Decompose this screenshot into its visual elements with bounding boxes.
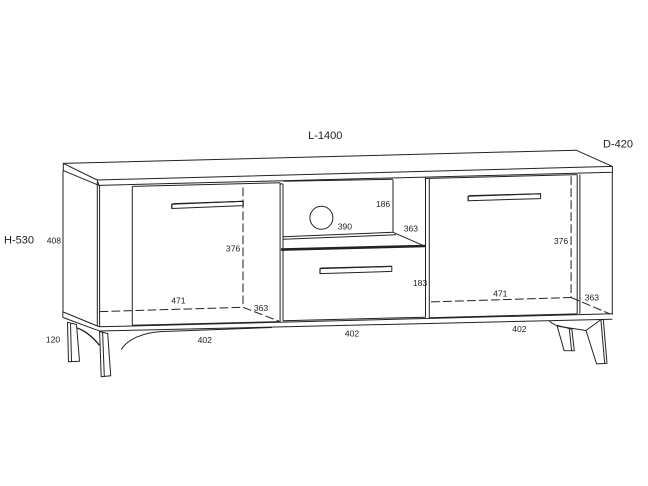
svg-text:471: 471: [171, 296, 186, 306]
svg-text:471: 471: [493, 289, 508, 299]
svg-text:363: 363: [404, 224, 419, 234]
svg-text:H-530: H-530: [4, 235, 34, 247]
svg-text:390: 390: [338, 222, 353, 232]
svg-text:402: 402: [345, 329, 360, 339]
svg-text:408: 408: [47, 235, 62, 245]
svg-text:363: 363: [585, 293, 600, 303]
svg-text:120: 120: [46, 335, 61, 345]
svg-text:183: 183: [413, 278, 428, 288]
svg-text:186: 186: [376, 199, 391, 209]
svg-text:402: 402: [198, 335, 213, 345]
svg-text:L-1400: L-1400: [308, 130, 342, 142]
svg-text:D-420: D-420: [603, 139, 633, 151]
svg-text:402: 402: [512, 324, 527, 334]
svg-text:376: 376: [554, 236, 569, 246]
svg-text:363: 363: [254, 303, 269, 313]
svg-text:376: 376: [226, 243, 241, 253]
